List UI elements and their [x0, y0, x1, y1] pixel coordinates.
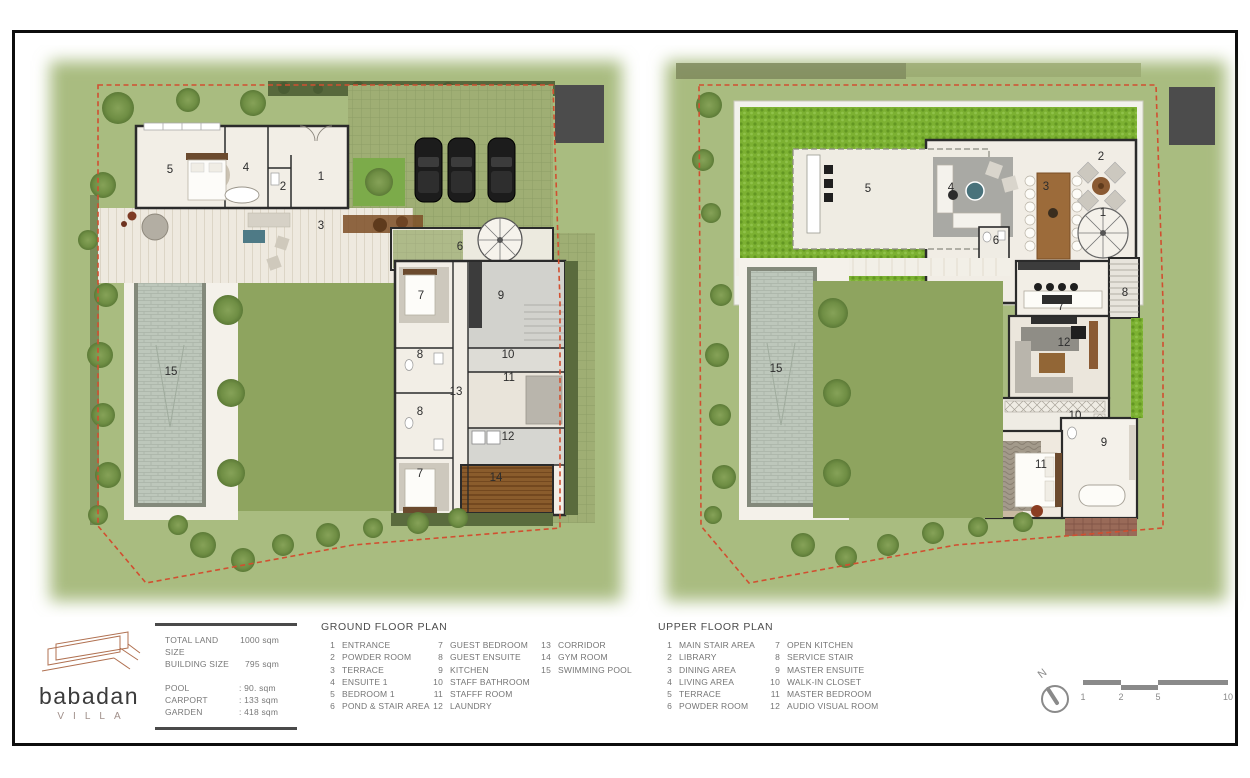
- scale-segment: [1121, 685, 1158, 690]
- legend-label: GUEST BEDROOM: [450, 639, 537, 651]
- master-ensuite: [1061, 418, 1137, 518]
- ground-plan-title: GROUND FLOOR PLAN: [321, 621, 656, 633]
- scale-label: 1: [1080, 692, 1085, 702]
- legend-item: 5BEDROOM 1: [321, 688, 429, 700]
- north-arrow: N: [1031, 661, 1079, 728]
- legend-item: 14GYM ROOM: [537, 651, 633, 663]
- legend-label: MASTER BEDROOM: [787, 688, 874, 700]
- site-info-panel: TOTAL LAND SIZE1000 sqmBUILDING SIZE795 …: [155, 623, 297, 730]
- legend-item: 3DINING AREA: [658, 664, 766, 676]
- legend-label: SERVICE STAIR: [787, 651, 874, 663]
- legend-label: LAUNDRY: [450, 700, 537, 712]
- legend-item: 8GUEST ENSUITE: [429, 651, 537, 663]
- legend-label: POND & STAIR AREA: [342, 700, 430, 712]
- info-label: TOTAL LAND SIZE: [165, 634, 239, 658]
- living-area: [933, 157, 1019, 237]
- room-number: 2: [1098, 151, 1104, 163]
- logo-name: babadan: [25, 684, 153, 708]
- legend-label: AUDIO VISUAL ROOM: [787, 700, 878, 712]
- room-number: 7: [1058, 301, 1064, 313]
- scale-label: 10: [1223, 692, 1233, 702]
- scale-bar: 1 2 5 10: [1077, 677, 1241, 708]
- info-label: CARPORT: [165, 694, 239, 706]
- legend-item: 8SERVICE STAIR: [766, 651, 874, 663]
- legend-column: 1MAIN STAIR AREA2LIBRARY3DINING AREA4LIV…: [658, 639, 766, 713]
- legend-number: 2: [321, 651, 335, 663]
- info-row: GARDEN: 418 sqm: [165, 706, 293, 718]
- legend-number: 5: [658, 688, 672, 700]
- legend-label: ENSUITE 1: [342, 676, 429, 688]
- legend-number: 5: [321, 688, 335, 700]
- upper-floor-legend: UPPER FLOOR PLAN 1MAIN STAIR AREA2LIBRAR…: [658, 621, 988, 713]
- legend-label: MAIN STAIR AREA: [679, 639, 766, 651]
- legend-number: 6: [658, 700, 672, 712]
- room-number: 6: [457, 241, 463, 253]
- logo-block: babadan VILLA: [25, 625, 153, 722]
- legend-number: 14: [537, 651, 551, 663]
- legend-number: 7: [429, 639, 443, 651]
- legend-label: LIVING AREA: [679, 676, 766, 688]
- terrace: [98, 208, 423, 283]
- legend-item: 4ENSUITE 1: [321, 676, 429, 688]
- room-number: 10: [502, 349, 515, 361]
- legend-item: 11MASTER BEDROOM: [766, 688, 874, 700]
- room-number: 3: [1043, 181, 1049, 193]
- legend-number: 12: [766, 700, 780, 712]
- legend-number: 8: [766, 651, 780, 663]
- legend-item: 1MAIN STAIR AREA: [658, 639, 766, 651]
- av-room: [1009, 316, 1109, 398]
- legend-label: ENTRANCE: [342, 639, 429, 651]
- legend-item: 15SWIMMING POOL: [537, 664, 633, 676]
- room-number: 5: [865, 183, 871, 195]
- room-number: 10: [1069, 410, 1082, 422]
- room-number: 9: [1101, 437, 1107, 449]
- logo-subtitle: VILLA: [25, 711, 153, 722]
- car: [448, 138, 475, 202]
- ground-floor-legend: GROUND FLOOR PLAN 1ENTRANCE2POWDER ROOM3…: [321, 621, 656, 713]
- room-number: 4: [243, 162, 250, 174]
- hedge-strip-east: [1131, 318, 1143, 418]
- legend-number: 10: [429, 676, 443, 688]
- legend-item: 9MASTER ENSUITE: [766, 664, 874, 676]
- legend-number: 7: [766, 639, 780, 651]
- legend-number: 4: [321, 676, 335, 688]
- legend-item: 2LIBRARY: [658, 651, 766, 663]
- room-number: 4: [948, 182, 955, 194]
- wing-east-hedge: [565, 261, 578, 515]
- legend-number: 2: [658, 651, 672, 663]
- room-number: 1: [1100, 207, 1106, 219]
- north-driveway: [676, 63, 906, 79]
- legend-label: BEDROOM 1: [342, 688, 429, 700]
- info-row: TOTAL LAND SIZE1000 sqm: [165, 634, 293, 658]
- legend-label: KITCHEN: [450, 664, 537, 676]
- legend-item: 6POWDER ROOM: [658, 700, 766, 712]
- legend-number: 3: [321, 664, 335, 676]
- ground-floor-plan: 54213679810111381271415: [28, 45, 640, 617]
- room-number: 2: [280, 181, 286, 193]
- info-label: POOL: [165, 682, 239, 694]
- legend-label: GYM ROOM: [558, 651, 633, 663]
- legend-column: 1ENTRANCE2POWDER ROOM3TERRACE4ENSUITE 15…: [321, 639, 429, 713]
- room-number: 15: [165, 366, 178, 378]
- legend-label: DINING AREA: [679, 664, 766, 676]
- legend-column: 13CORRIDOR14GYM ROOM15SWIMMING POOL: [537, 639, 633, 713]
- north-label: N: [1036, 667, 1050, 681]
- info-row: CARPORT: 133 sqm: [165, 694, 293, 706]
- legend-item: 1ENTRANCE: [321, 639, 429, 651]
- legend-label: MASTER ENSUITE: [787, 664, 874, 676]
- legend-item: 5TERRACE: [658, 688, 766, 700]
- room-number: 9: [498, 290, 504, 302]
- legend-item: 4LIVING AREA: [658, 676, 766, 688]
- legend-number: 3: [658, 664, 672, 676]
- upper-floor-site-svg: 54321678121091115: [641, 45, 1246, 617]
- room-number: 15: [770, 363, 783, 375]
- ground-floor-site-svg: 54213679810111381271415: [28, 45, 640, 617]
- room-number: 8: [1122, 287, 1128, 299]
- neighbor-structure: [1169, 87, 1215, 145]
- legend-number: 1: [321, 639, 335, 651]
- legend-number: 13: [537, 639, 551, 651]
- room-number: 11: [503, 372, 515, 384]
- gym-floor: [461, 465, 553, 513]
- legend-item: 10WALK-IN CLOSET: [766, 676, 874, 688]
- room-number: 1: [318, 171, 324, 183]
- legend-item: 3TERRACE: [321, 664, 429, 676]
- legend-label: STAFF BATHROOM: [450, 676, 537, 688]
- room-number: 7: [417, 468, 423, 480]
- info-value: 795 sqm: [239, 658, 293, 670]
- legend-number: 9: [429, 664, 443, 676]
- legend-number: 1: [658, 639, 672, 651]
- legend-item: 2POWDER ROOM: [321, 651, 429, 663]
- legend-item: 11STAFFF ROOM: [429, 688, 537, 700]
- legend-column: 7GUEST BEDROOM8GUEST ENSUITE9KITCHEN10ST…: [429, 639, 537, 713]
- room-number: 6: [993, 235, 999, 247]
- legend-item: 13CORRIDOR: [537, 639, 633, 651]
- legend-column: 7OPEN KITCHEN8SERVICE STAIR9MASTER ENSUI…: [766, 639, 874, 713]
- legend-item: 12AUDIO VISUAL ROOM: [766, 700, 874, 712]
- legend-number: 4: [658, 676, 672, 688]
- legend-number: 15: [537, 664, 551, 676]
- room-number: 14: [490, 472, 503, 484]
- scale-label: 2: [1118, 692, 1123, 702]
- info-row: BUILDING SIZE795 sqm: [165, 658, 293, 670]
- legend-label: POWDER ROOM: [342, 651, 429, 663]
- info-label: GARDEN: [165, 706, 239, 718]
- upper-floor-plan: 54321678121091115: [641, 45, 1246, 617]
- scale-segment: [1083, 680, 1121, 685]
- info-row: POOL: 90. sqm: [165, 682, 293, 694]
- babadan-logo-icon: [34, 625, 144, 677]
- info-value: : 90. sqm: [239, 682, 293, 694]
- room-number: 13: [450, 386, 463, 398]
- info-label: BUILDING SIZE: [165, 658, 239, 670]
- drawing-sheet: 54213679810111381271415: [0, 0, 1250, 778]
- spiral-staircase: [478, 218, 522, 262]
- scale-segment: [1158, 680, 1228, 685]
- legend-label: OPEN KITCHEN: [787, 639, 874, 651]
- legend-item: 6POND & STAIR AREA: [321, 700, 429, 712]
- legend-label: GUEST ENSUITE: [450, 651, 537, 663]
- legend-number: 8: [429, 651, 443, 663]
- legend-number: 11: [429, 688, 443, 700]
- drawing-frame: 54213679810111381271415: [12, 30, 1238, 746]
- legend-label: TERRACE: [342, 664, 429, 676]
- legend-label: POWDER ROOM: [679, 700, 766, 712]
- legend-label: LIBRARY: [679, 651, 766, 663]
- area-rows: POOL: 90. sqmCARPORT: 133 sqmGARDEN: 418…: [165, 682, 293, 718]
- legend-label: WALK-IN CLOSET: [787, 676, 874, 688]
- car: [488, 138, 515, 202]
- info-value: : 133 sqm: [239, 694, 293, 706]
- legend-number: 9: [766, 664, 780, 676]
- legend-item: 7GUEST BEDROOM: [429, 639, 537, 651]
- room-number: 5: [167, 164, 173, 176]
- room-number: 8: [417, 349, 423, 361]
- neighbor-structure: [555, 85, 604, 143]
- car: [415, 138, 442, 202]
- north-pavers: [906, 63, 1141, 77]
- size-rows: TOTAL LAND SIZE1000 sqmBUILDING SIZE795 …: [165, 634, 293, 670]
- legend-item: 10STAFF BATHROOM: [429, 676, 537, 688]
- legend-item: 7OPEN KITCHEN: [766, 639, 874, 651]
- legend-label: CORRIDOR: [558, 639, 633, 651]
- legend-label: STAFFF ROOM: [450, 688, 537, 700]
- carport-cars: [415, 138, 515, 202]
- legend-number: 11: [766, 688, 780, 700]
- legend-item: 12LAUNDRY: [429, 700, 537, 712]
- info-value: 1000 sqm: [239, 634, 293, 658]
- compass-needle: [1048, 689, 1057, 703]
- legend-item: 9KITCHEN: [429, 664, 537, 676]
- room-number: 8: [417, 406, 423, 418]
- scale-label: 5: [1155, 692, 1160, 702]
- upper-plan-title: UPPER FLOOR PLAN: [658, 621, 988, 633]
- legend-label: SWIMMING POOL: [558, 664, 633, 676]
- legend-label: TERRACE: [679, 688, 766, 700]
- info-value: : 418 sqm: [239, 706, 293, 718]
- legend-number: 12: [429, 700, 443, 712]
- room-number: 7: [418, 290, 424, 302]
- room-number: 12: [1058, 337, 1071, 349]
- legend-number: 6: [321, 700, 335, 712]
- room-number: 11: [1035, 459, 1047, 471]
- room-number: 3: [318, 220, 324, 232]
- room-number: 12: [502, 431, 515, 443]
- legend-number: 10: [766, 676, 780, 688]
